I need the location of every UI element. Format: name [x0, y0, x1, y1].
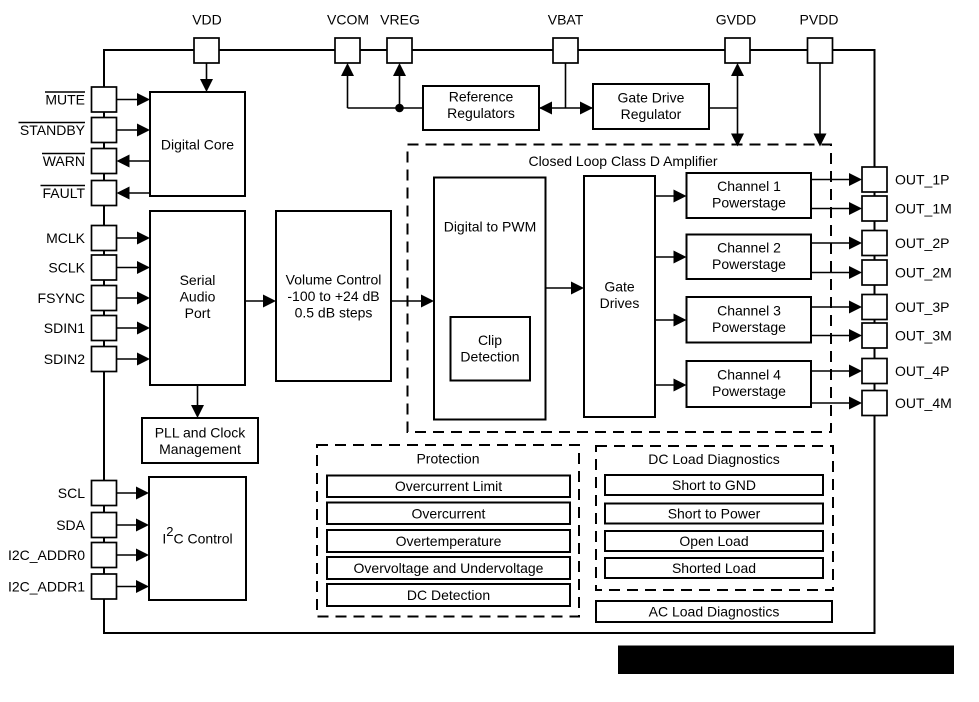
svg-text:-100 to +24 dB: -100 to +24 dB [287, 288, 379, 304]
svg-text:Clip: Clip [478, 332, 502, 348]
svg-text:Channel 4: Channel 4 [717, 367, 781, 383]
svg-text:Powerstage: Powerstage [712, 195, 786, 211]
svg-text:VCOM: VCOM [327, 12, 369, 28]
svg-text:MUTE: MUTE [45, 92, 85, 108]
svg-text:OUT_3M: OUT_3M [895, 328, 952, 344]
svg-text:Regulator: Regulator [621, 106, 682, 122]
svg-text:OUT_4M: OUT_4M [895, 395, 952, 411]
svg-text:OUT_1P: OUT_1P [895, 172, 949, 188]
svg-text:FSYNC: FSYNC [38, 290, 85, 306]
svg-text:Open Load: Open Load [679, 533, 748, 549]
svg-text:Serial: Serial [180, 272, 216, 288]
svg-text:PLL and Clock: PLL and Clock [155, 425, 247, 441]
svg-text:Channel 2: Channel 2 [717, 240, 781, 256]
svg-text:STANDBY: STANDBY [20, 122, 86, 138]
svg-text:SDA: SDA [56, 517, 85, 533]
svg-text:Management: Management [159, 441, 241, 457]
svg-text:Short to Power: Short to Power [668, 506, 761, 522]
svg-text:Overcurrent: Overcurrent [412, 506, 486, 522]
svg-text:Closed Loop Class D Amplifier: Closed Loop Class D Amplifier [528, 153, 717, 169]
svg-text:I2C_ADDR1: I2C_ADDR1 [8, 579, 85, 595]
svg-text:VREG: VREG [380, 12, 420, 28]
svg-text:Overtemperature: Overtemperature [396, 533, 502, 549]
svg-text:Gate: Gate [604, 279, 635, 295]
svg-text:Audio: Audio [180, 289, 216, 305]
svg-text:SCL: SCL [58, 485, 85, 501]
svg-text:I2C_ADDR0: I2C_ADDR0 [8, 547, 85, 563]
svg-text:Digital Core: Digital Core [161, 137, 234, 153]
svg-text:SDIN1: SDIN1 [44, 320, 85, 336]
svg-text:Volume Control: Volume Control [286, 272, 382, 288]
svg-text:Shorted Load: Shorted Load [672, 560, 756, 576]
svg-text:GVDD: GVDD [716, 12, 756, 28]
svg-text:PVDD: PVDD [800, 12, 839, 28]
svg-text:Protection: Protection [416, 451, 479, 467]
svg-text:OUT_2P: OUT_2P [895, 235, 949, 251]
svg-text:Powerstage: Powerstage [712, 319, 786, 335]
svg-text:Reference: Reference [449, 89, 514, 105]
svg-text:Short to GND: Short to GND [672, 477, 756, 493]
svg-text:Channel 3: Channel 3 [717, 303, 781, 319]
svg-text:VBAT: VBAT [548, 12, 584, 28]
svg-text:VDD: VDD [192, 12, 222, 28]
svg-text:Overvoltage and Undervoltage: Overvoltage and Undervoltage [354, 560, 544, 576]
svg-text:DC Load Diagnostics: DC Load Diagnostics [648, 451, 780, 467]
svg-text:OUT_1M: OUT_1M [895, 201, 952, 217]
svg-text:Port: Port [185, 305, 211, 321]
svg-text:Regulators: Regulators [447, 105, 515, 121]
svg-text:Digital to PWM: Digital to PWM [444, 219, 537, 235]
svg-text:SDIN2: SDIN2 [44, 351, 85, 367]
svg-text:0.5 dB steps: 0.5 dB steps [295, 305, 373, 321]
svg-text:OUT_2M: OUT_2M [895, 265, 952, 281]
svg-text:Channel 1: Channel 1 [717, 178, 781, 194]
svg-text:Powerstage: Powerstage [712, 256, 786, 272]
svg-text:Gate Drive: Gate Drive [618, 90, 685, 106]
svg-text:Drives: Drives [600, 295, 640, 311]
svg-text:DC Detection: DC Detection [407, 587, 490, 603]
svg-text:OUT_3P: OUT_3P [895, 299, 949, 315]
svg-text:SCLK: SCLK [48, 260, 85, 276]
svg-text:MCLK: MCLK [46, 230, 86, 246]
svg-text:FAULT: FAULT [42, 185, 85, 201]
svg-text:Detection: Detection [460, 349, 519, 365]
svg-text:Powerstage: Powerstage [712, 383, 786, 399]
svg-text:OUT_4P: OUT_4P [895, 363, 949, 379]
svg-text:Overcurrent Limit: Overcurrent Limit [395, 478, 502, 494]
svg-text:AC Load Diagnostics: AC Load Diagnostics [649, 604, 780, 620]
svg-text:WARN: WARN [43, 153, 85, 169]
